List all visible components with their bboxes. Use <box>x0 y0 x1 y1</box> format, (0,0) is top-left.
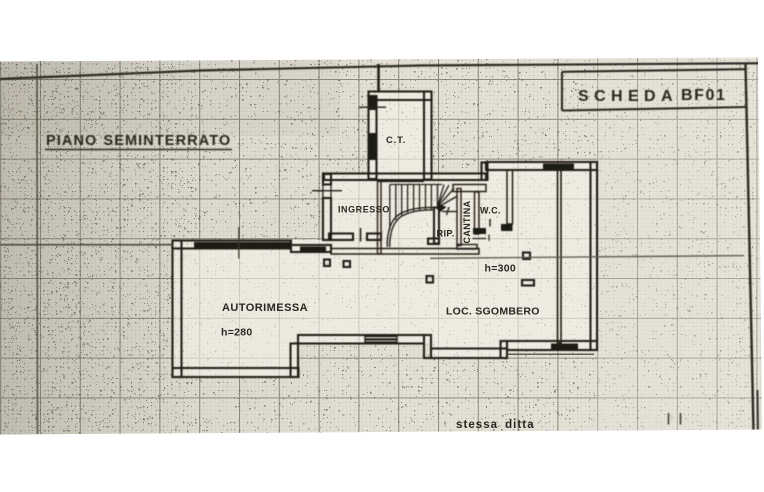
svg-text:stessaditta: stessaditta <box>456 419 535 431</box>
svg-text:SCHEDA: SCHEDA <box>578 88 678 105</box>
svg-text:INGRESSO: INGRESSO <box>338 205 390 215</box>
svg-text:PIANOSEMINTERRATO: PIANOSEMINTERRATO <box>46 133 231 149</box>
svg-text:BF01: BF01 <box>681 87 727 104</box>
svg-text:LOC. SGOMBERO: LOC. SGOMBERO <box>446 306 540 318</box>
svg-text:h=280: h=280 <box>221 327 253 339</box>
svg-text:h=300: h=300 <box>485 263 517 275</box>
svg-text:W.C.: W.C. <box>480 206 501 216</box>
svg-text:C.T.: C.T. <box>386 135 406 146</box>
svg-text:AUTORIMESSA: AUTORIMESSA <box>222 302 308 314</box>
svg-text:RIP.: RIP. <box>437 229 455 239</box>
svg-text:CANTINA: CANTINA <box>462 200 472 243</box>
